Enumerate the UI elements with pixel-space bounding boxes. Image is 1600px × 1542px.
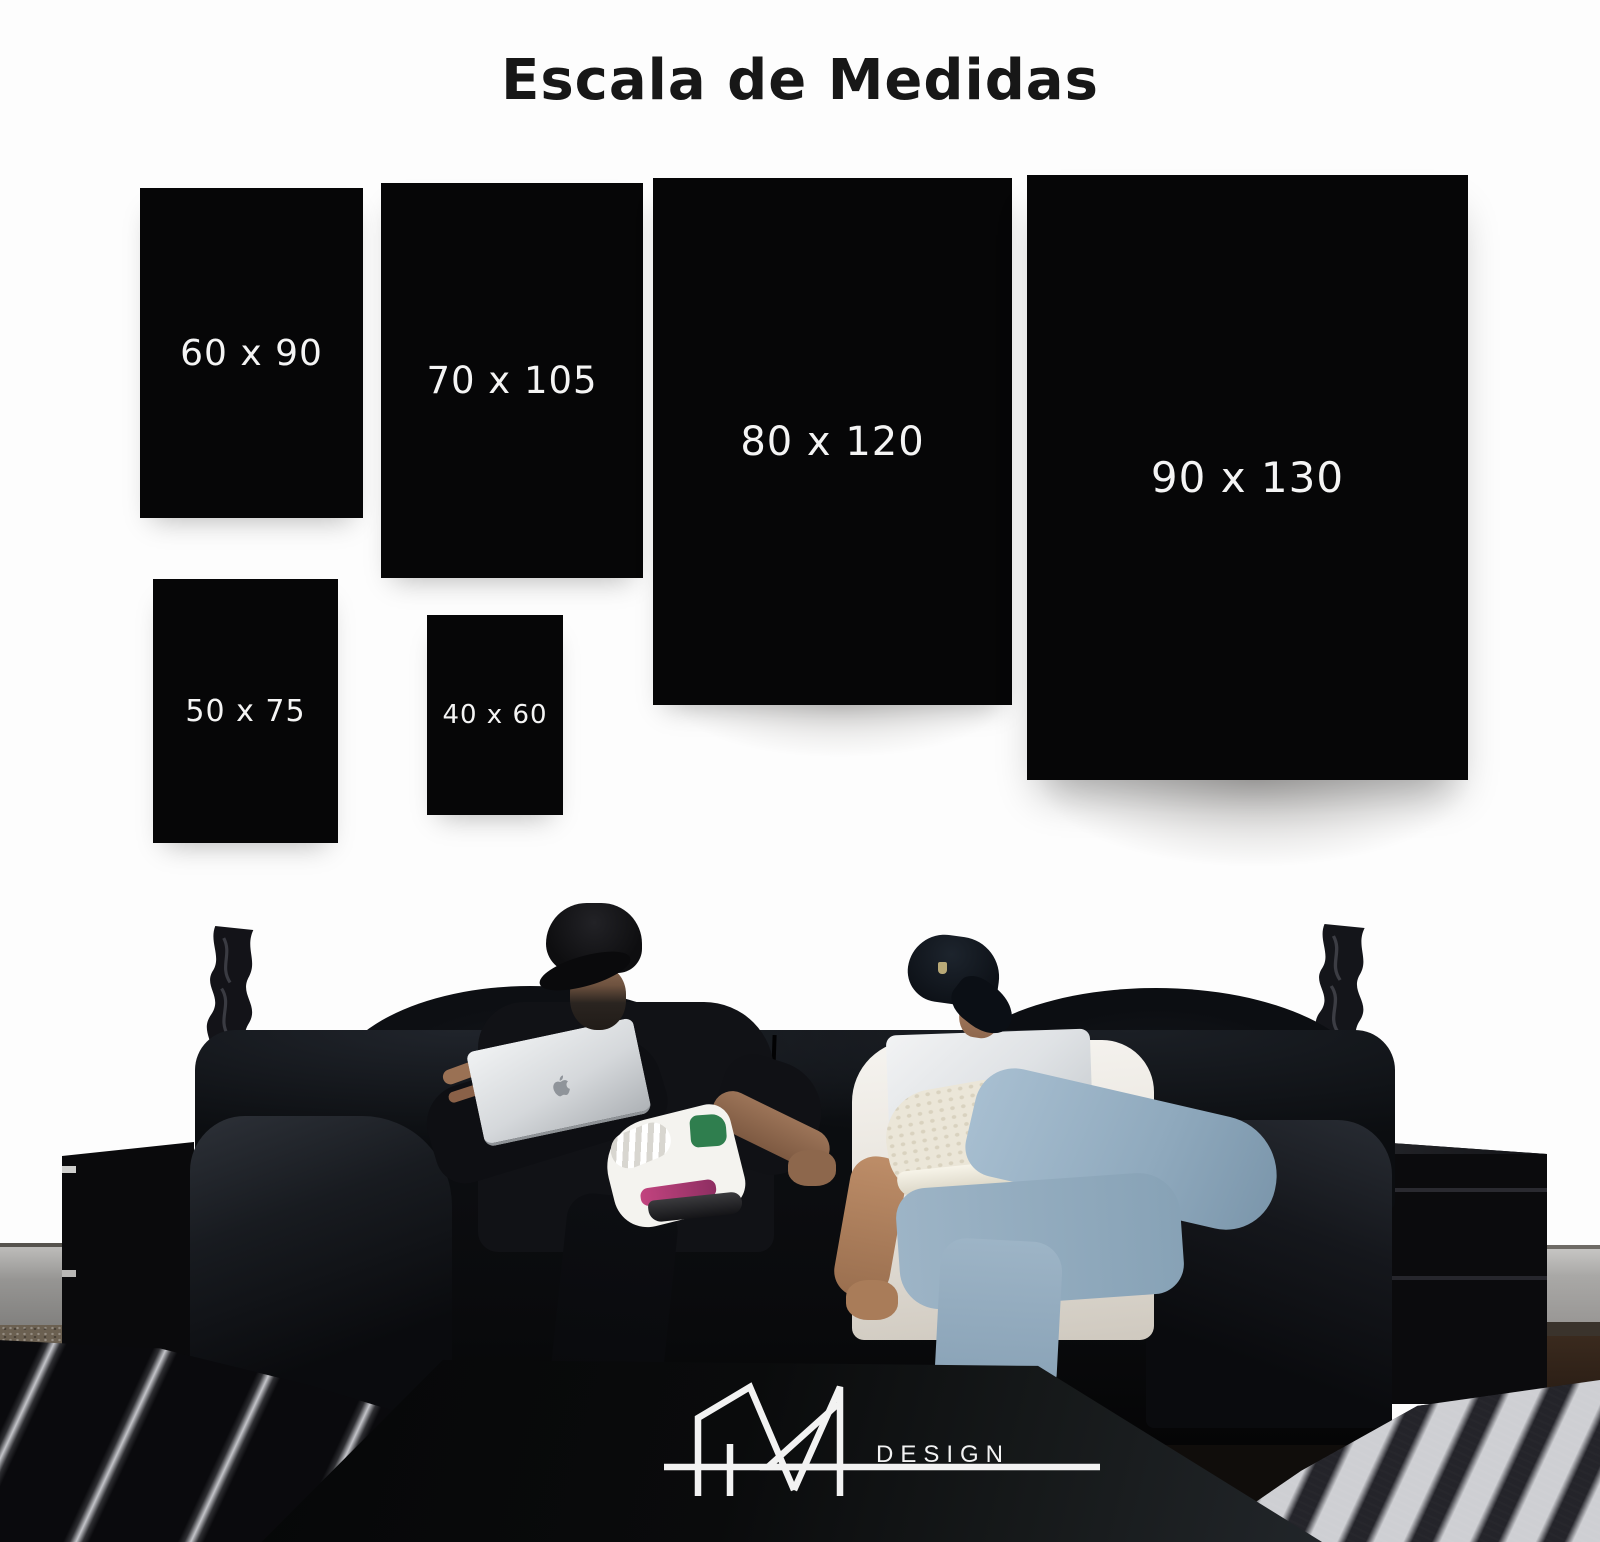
size-label: 50 x 75 xyxy=(185,694,305,729)
drawer-seam xyxy=(62,1166,76,1173)
size-swatch-70x105: 70 x 105 xyxy=(381,183,643,578)
left-man-hand xyxy=(788,1150,836,1186)
size-label: 40 x 60 xyxy=(442,700,547,730)
size-swatch-50x75: 50 x 75 xyxy=(153,579,338,843)
table-top-face xyxy=(1377,1142,1547,1154)
sneaker-green-accent xyxy=(689,1113,727,1147)
size-swatch-80x120: 80 x 120 xyxy=(653,178,1012,705)
drawer-seam xyxy=(62,1270,76,1277)
size-swatch-40x60: 40 x 60 xyxy=(427,615,563,815)
wall-shadow xyxy=(1035,778,1475,868)
baseboard-left xyxy=(0,1243,64,1329)
right-man-shin xyxy=(934,1237,1063,1383)
size-swatch-60x90: 60 x 90 xyxy=(140,188,363,518)
drawer-seam xyxy=(1385,1188,1547,1192)
right-man-hand xyxy=(846,1280,898,1320)
size-guide-poster: Escala de Medidas 60 x 90 70 x 105 80 x … xyxy=(0,0,1600,1542)
baseboard-right xyxy=(1543,1245,1600,1326)
size-label: 60 x 90 xyxy=(180,333,323,374)
side-table-right xyxy=(1377,1142,1547,1404)
size-label: 80 x 120 xyxy=(740,419,924,465)
size-label: 70 x 105 xyxy=(426,359,597,402)
drawer-seam xyxy=(1385,1276,1547,1280)
brand-wordmark: DESIGN xyxy=(876,1441,1010,1468)
page-title: Escala de Medidas xyxy=(0,48,1600,113)
brand-logo: DESIGN xyxy=(648,1378,1118,1508)
wall-shadow xyxy=(675,703,1005,758)
size-swatch-90x130: 90 x 130 xyxy=(1027,175,1468,780)
size-label: 90 x 130 xyxy=(1151,453,1344,502)
floor-shadow-line-right xyxy=(1543,1322,1600,1336)
cap-shield-logo-icon xyxy=(938,962,947,974)
